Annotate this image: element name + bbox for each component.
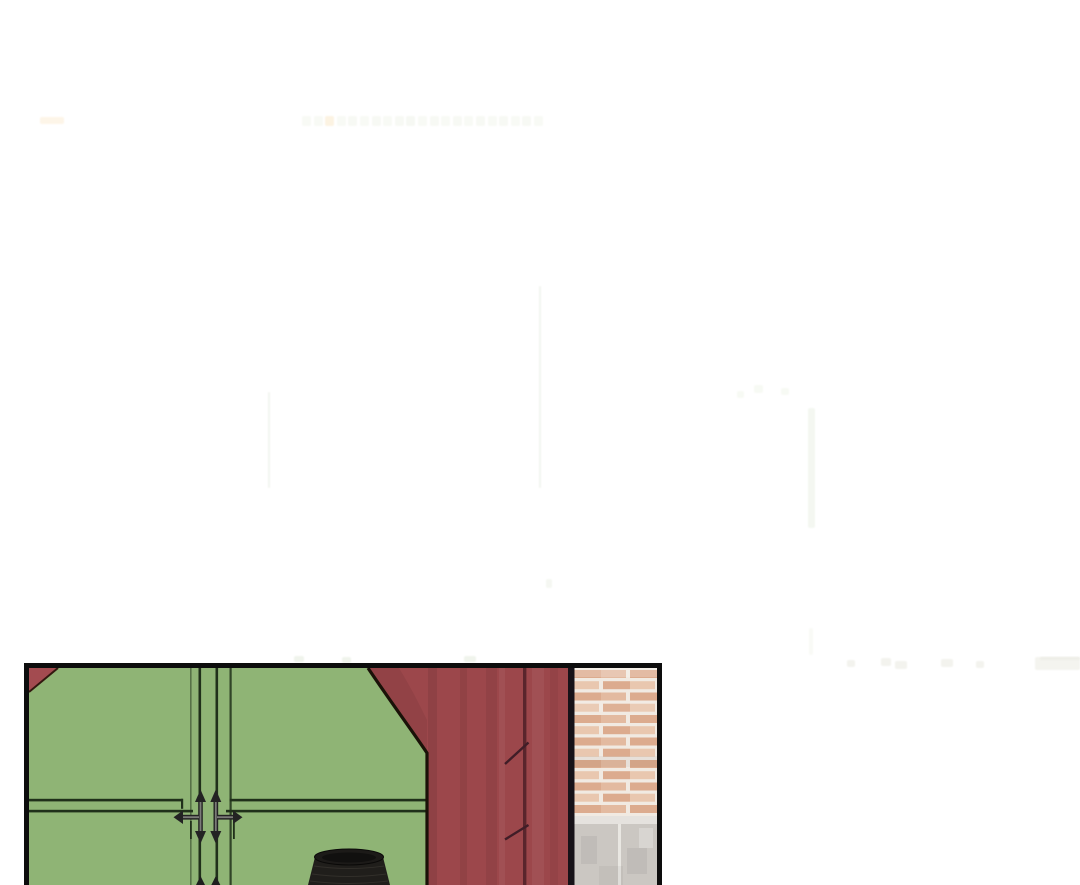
ghost-artifact (395, 116, 404, 126)
ghost-artifact (488, 116, 497, 126)
left-door-trim-line (190, 668, 192, 885)
webtoon-page[interactable] (0, 0, 1080, 885)
ghost-artifact (546, 579, 552, 588)
ghost-artifact (511, 116, 520, 126)
left-door-sub-line (190, 821, 192, 839)
ghost-artifact (418, 116, 427, 126)
ghost-artifact (294, 656, 304, 662)
ghost-artifact (499, 116, 508, 126)
ghost-artifact (302, 116, 311, 126)
ghost-artifact (808, 408, 815, 528)
comic-panel-art (29, 668, 657, 885)
ghost-artifact (40, 117, 64, 124)
right-door-trim-line (230, 668, 232, 885)
ghost-artifact (348, 116, 357, 126)
ghost-artifact (847, 660, 855, 667)
ghost-artifact (895, 661, 907, 669)
left-door-rail-hook (181, 799, 183, 809)
pillar-seam (523, 668, 526, 885)
ghost-artifact (464, 656, 476, 662)
concrete-footing (575, 816, 658, 885)
ghost-artifact (441, 116, 450, 126)
black-basket (308, 849, 390, 885)
ghost-artifact (1035, 657, 1080, 670)
ghost-artifact (522, 116, 531, 126)
left-door-rail-lower (29, 810, 193, 813)
ghost-artifact (534, 116, 543, 126)
ghost-artifact (406, 116, 415, 126)
ghost-artifact (809, 628, 813, 655)
ghost-artifact (781, 388, 789, 395)
ghost-artifact (476, 116, 485, 126)
ghost-artifact (976, 661, 984, 668)
left-door-rail-upper (29, 799, 183, 802)
ghost-artifact (337, 116, 346, 126)
ghost-artifact (881, 658, 891, 666)
left-door-edge-line (199, 668, 202, 885)
ghost-artifact (268, 392, 270, 488)
ghost-artifact (453, 116, 462, 126)
pillar-right-edge (568, 668, 575, 885)
right-door-edge-line (216, 668, 219, 885)
right-door-rail-upper (230, 799, 429, 802)
ghost-artifact (325, 116, 334, 126)
ghost-artifact (372, 116, 381, 126)
ghost-artifact (464, 116, 473, 126)
ghost-artifact (754, 385, 763, 393)
ghost-artifact (1040, 657, 1080, 660)
ghost-artifact (360, 116, 369, 126)
ghost-artifact (941, 659, 953, 667)
ghost-artifact (539, 286, 541, 488)
brick-wall (575, 668, 658, 820)
ghost-artifact (314, 116, 323, 126)
ghost-artifact (430, 116, 439, 126)
ghost-artifact (383, 116, 392, 126)
right-door-rail-lower (226, 810, 428, 813)
ghost-artifact (737, 391, 744, 398)
comic-panel[interactable] (24, 663, 662, 885)
